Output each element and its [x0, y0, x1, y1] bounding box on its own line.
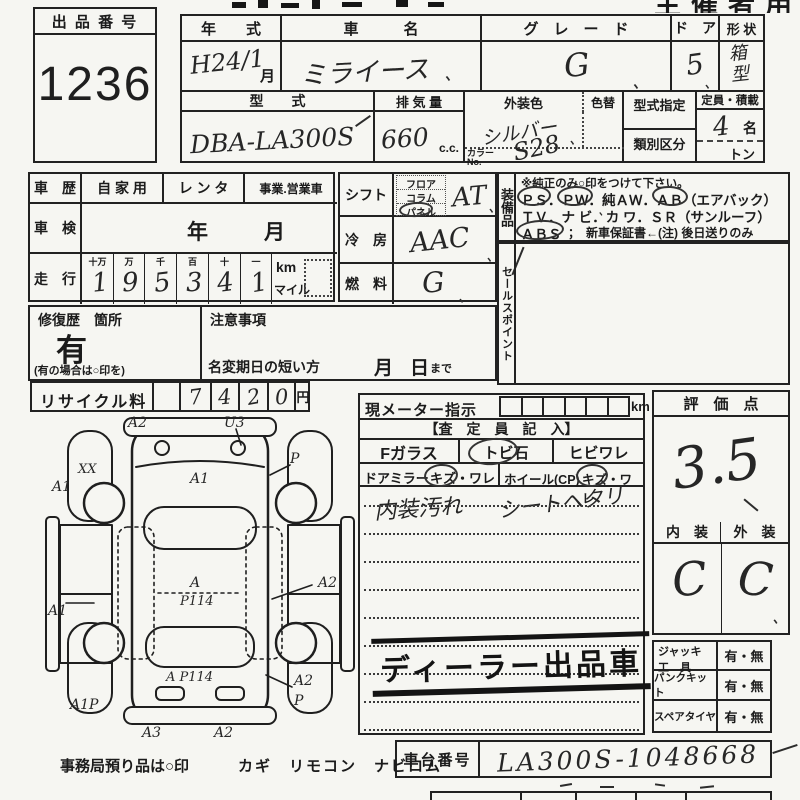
header-fragment [281, 3, 299, 8]
odometer-digit-col: 十 4 [209, 254, 241, 304]
load-cell: トン [697, 142, 763, 161]
bottom-partial-col [575, 791, 577, 800]
damage-code: P114 [179, 594, 214, 609]
meter-digit-box [585, 398, 607, 415]
equipment-content: ※純正のみ○印をつけて下さい。 ＰＳ．ＰＷ．純ＡＷ．ＡＢ（エアバック） ＴＶ．ナ… [516, 174, 788, 240]
damage-code: A3 [140, 725, 161, 741]
fglass-crack-option: ヒビワレ [554, 440, 643, 464]
capacity-unit: 名 [743, 118, 757, 138]
meter-row: 現メーター指示 km [360, 395, 643, 420]
rear-bumper [124, 707, 276, 724]
repair-cell: 修復歴 箇所 有 (有の場合は○印を) [30, 307, 202, 379]
recycle-unit: 円 [296, 387, 309, 406]
history-private: 自 家 用 [82, 174, 164, 204]
damage-code: A [188, 575, 200, 591]
year-header: 年 式 [182, 16, 282, 42]
odometer-digit-col: 十万 1 [82, 254, 114, 304]
fuel-label: 燃 料 [340, 264, 394, 304]
mirror-cell: ドアミラー キズ・ワレ [360, 464, 500, 487]
mirror-label: ドアミラー [364, 468, 429, 487]
inspection-month-unit: 月 [264, 216, 285, 246]
fuel-value: G [421, 265, 446, 299]
pen-tick: 、 [692, 200, 705, 219]
year-cell: H24/1 月 [182, 42, 282, 92]
odometer-col-label: 十 [209, 255, 240, 268]
recycle-digit: 0 [274, 384, 289, 409]
lot-number-value: 1236 [35, 49, 155, 119]
color-change-header: 色替 [584, 92, 624, 112]
caution-cell: 注意事項 名変期日の短い方 月 日 まで [202, 307, 495, 379]
odometer-digit: 1 [249, 267, 271, 299]
dotted-line [364, 729, 639, 731]
exterior-label: 外 装 [721, 522, 788, 544]
caution-label: 注意事項 [210, 310, 266, 330]
recycle-digit: 4 [217, 384, 232, 409]
pen-tick: 、 [569, 128, 584, 149]
dotted-line [364, 561, 639, 563]
bottom-partial-table-line [430, 791, 772, 793]
exterior-value: C [736, 551, 775, 607]
rating-label: 評 価 点 [654, 392, 788, 417]
capacity-cell: 4 名 [697, 110, 763, 142]
pen-tick: 、 [704, 72, 719, 93]
bottom-partial-col [520, 791, 522, 800]
recycle-digit: 7 [187, 384, 204, 410]
jack-label-line1: ジャッキ [654, 642, 716, 659]
year-value: H24/1 [189, 44, 266, 80]
type-designation-label: 型式指定 [624, 95, 695, 114]
chassis-number-row: 車台番号 LA300S-1048668 [395, 740, 772, 778]
bottom-partial-col [635, 791, 637, 800]
header-fragment [428, 2, 444, 7]
recycle-digit: 2 [245, 384, 262, 410]
spare-tire-label: スペアタイヤ [654, 701, 718, 731]
inspector-entry-header: 【査 定 員 記 入】 [360, 420, 643, 440]
auction-sheet: 主催者用 出 品 番 号 1236 年 式 車 名 グ レ ー ド ド ア 形 … [0, 0, 800, 800]
damage-code: A2 [292, 673, 313, 689]
recycle-digit-cell: 4 [210, 383, 238, 410]
pen-stroke [743, 498, 758, 511]
sales-point-label: セールスポイント [499, 244, 516, 383]
lot-number-label: 出 品 番 号 [35, 9, 155, 35]
odometer-label: 走 行 [30, 254, 82, 304]
left-sill [46, 517, 59, 671]
damage-code: XX [77, 462, 97, 477]
sales-point-box: セールスポイント [497, 242, 790, 385]
model-cell: DBA-LA300S [182, 112, 375, 161]
dotted-line [364, 505, 639, 507]
interior-value: C [669, 550, 710, 607]
km-unit: km [276, 259, 296, 275]
displacement-value: 660 [380, 122, 430, 154]
damage-code: A1P [68, 697, 99, 713]
grade-value: G [562, 45, 591, 85]
damage-code: A2 [316, 575, 337, 591]
damage-code: A1 [50, 479, 71, 495]
odometer-col-label: 万 [114, 255, 144, 268]
right-sill [341, 517, 354, 671]
load-unit: トン [729, 144, 755, 163]
ac-value: AAC [409, 222, 472, 259]
odometer-unit-checkbox [304, 259, 332, 297]
odometer-col-label: 百 [177, 255, 208, 268]
organizer-label: 主催者用 [654, 0, 800, 13]
header-fragment [342, 2, 362, 7]
dotted-line [364, 617, 639, 619]
front-left-wheel [84, 483, 124, 523]
history-label: 車 歴 [30, 174, 82, 204]
spare-tire-value: 有・無 [718, 701, 770, 731]
fuel-cell: G 、 [394, 264, 499, 304]
meter-digit-box [607, 398, 629, 415]
odometer-digit-col: 千 5 [145, 254, 177, 304]
fglass-label: Fガラス [360, 440, 460, 464]
equipment-box: 装備品 ※純正のみ○印をつけて下さい。 ＰＳ．ＰＷ．純ＡＷ．ＡＢ（エアバック） … [497, 172, 790, 242]
pen-stroke [772, 744, 797, 754]
dotted-line [364, 533, 639, 535]
pen-stroke [560, 783, 572, 787]
shape-header: 形 状 [720, 16, 763, 42]
recycle-fee-row: リサイクル料 7 4 2 0 円 [30, 381, 310, 412]
lot-number-box: 出 品 番 号 1236 [33, 7, 157, 163]
bottom-partial-col [770, 791, 772, 800]
damage-code: A2 [212, 725, 233, 741]
equipment-line3-warranty: ； 新車保証書←(注) 後日送りのみ [568, 224, 753, 241]
displacement-cell: 660 c.c. [375, 112, 465, 161]
header-fragment [232, 2, 246, 8]
rating-score: 3.5 [668, 426, 765, 503]
color-header: 外装色 [465, 92, 584, 112]
office-items-list: カギ リモコン ナビロム [238, 755, 442, 776]
rating-box: 評 価 点 3.5 内 装 外 装 C C 、 [652, 390, 790, 635]
car-name-cell: ミライース 、 [282, 42, 482, 92]
odometer-digit: 1 [90, 267, 110, 299]
odometer-digit: 9 [121, 267, 140, 298]
repair-note: (有の場合は○印を) [34, 362, 125, 378]
history-table: 車 歴 自 家 用 レ ン タ 事業.営業車 車 検 年 月 走 行 十万 1 … [28, 172, 335, 302]
shift-option-floor: フロア [397, 176, 445, 190]
odometer-col-label: 一 [241, 255, 271, 268]
odometer-digit-col: 一 1 [241, 254, 272, 304]
pen-tick: 、 [444, 60, 462, 86]
repair-caution-box: 修復歴 箇所 有 (有の場合は○印を) 注意事項 名変期日の短い方 月 日 まで [28, 305, 497, 381]
meter-unit: km [631, 399, 650, 414]
inspection-cell: 年 月 [82, 204, 337, 254]
displacement-header: 排 気 量 [375, 92, 465, 112]
ac-cell: AAC 、 [394, 217, 499, 264]
puncture-kit-label: パンクキット [654, 671, 718, 701]
damage-code: A1 [46, 603, 67, 619]
pen-stroke [700, 785, 714, 788]
odometer-digit: 3 [185, 268, 203, 299]
recycle-cell-empty [152, 383, 179, 410]
pen-stroke [355, 115, 371, 127]
puncture-kit-value: 有・無 [718, 671, 770, 701]
bottom-partial-col [430, 791, 432, 800]
shift-value: AT [451, 181, 488, 214]
car-name-header: 車 名 [282, 16, 482, 42]
odometer-digit-col: 百 3 [177, 254, 209, 304]
classification-cell: 類別区分 [624, 130, 697, 161]
doors-value: 5 [684, 47, 706, 82]
damage-code: A1 [188, 471, 209, 487]
car-damage-diagram: A2 U3 XX A1 P A1 A1 A2 A P114 A P114 A1P… [40, 415, 360, 750]
model-header: 型 式 [182, 92, 375, 112]
rename-deadline-label: 名変期日の短い方 [208, 357, 320, 377]
meter-digit-boxes [499, 396, 630, 417]
shape-cell: 箱型 [720, 42, 763, 92]
meter-label: 現メーター指示 [365, 399, 477, 420]
meter-digit-box [501, 398, 521, 415]
meter-digit-box [542, 398, 564, 415]
dotted-line [364, 701, 639, 703]
inspector-note-1: 内装汚れ [373, 488, 463, 526]
rename-month-unit: 月 [374, 353, 393, 380]
chassis-value: LA300S-1048668 [497, 739, 760, 777]
pen-stroke [600, 786, 614, 788]
pen-leader [272, 585, 312, 599]
color-area: シルバー 、 カラー No. S28 [465, 112, 624, 161]
doors-header: ド ア [672, 16, 720, 42]
inspection-label: 車 検 [30, 204, 82, 254]
month-unit: 月 [260, 65, 275, 86]
damage-code: U3 [224, 415, 245, 431]
type-designation-cell: 型式指定 [624, 92, 697, 130]
jack-label-cell: ジャッキ 工 具 [654, 642, 718, 671]
capacity-header: 定員・積載 [697, 92, 763, 110]
office-items-note: 事務局預り品は○印 [60, 755, 189, 776]
damage-code: A P114 [165, 670, 213, 685]
recycle-digit-cell: 2 [238, 383, 267, 410]
header-fragment [258, 0, 268, 8]
pen-tick: 、 [598, 200, 611, 219]
interior-label: 内 装 [654, 522, 721, 544]
odometer-digit: 4 [215, 267, 236, 299]
odometer-col-label: 千 [145, 255, 176, 268]
bottom-partial-col [685, 791, 687, 800]
spec-table: 年 式 車 名 グ レ ー ド ド ア 形 状 H24/1 月 ミライース 、 … [180, 14, 765, 163]
pen-tick: 、 [772, 604, 788, 628]
color-no-label: カラー No. [467, 149, 503, 168]
grade-cell: G 、 [482, 42, 672, 92]
odometer-unit-cell: km マイル [272, 254, 337, 304]
recycle-unit-cell: 円 [294, 383, 310, 410]
front-right-wheel [276, 483, 316, 523]
classification-label: 類別区分 [624, 134, 695, 153]
capacity-value: 4 [711, 111, 731, 143]
rename-made-unit: まで [430, 360, 452, 376]
shift-options-box: フロア コラム パネル [396, 175, 446, 216]
car-name-value: ミライース [299, 49, 429, 93]
damage-code: P [293, 693, 304, 709]
dotted-line [364, 589, 639, 591]
pen-tick: 、 [458, 286, 473, 307]
dealer-stamp: ディーラー出品車 [371, 631, 650, 697]
odometer-digit-col: 万 9 [114, 254, 145, 304]
odometer-col-label: 十万 [82, 255, 113, 268]
pen-stroke [655, 783, 665, 786]
rename-day-unit: 日 [410, 353, 429, 380]
shape-value: 箱型 [728, 43, 752, 86]
rating-col-divider [721, 544, 722, 633]
recycle-digit-cell: 0 [267, 383, 294, 410]
pen-tick: 、 [632, 68, 650, 94]
header-fragment [396, 0, 408, 7]
inspection-year-unit: 年 [187, 216, 208, 246]
recycle-digit-cell: 7 [179, 383, 210, 410]
rear-right-wheel [276, 623, 316, 663]
controls-table: シフト フロア コラム パネル AT 、 冷 房 AAC 、 燃 料 G 、 [338, 172, 497, 302]
history-rental: レ ン タ [164, 174, 245, 204]
ac-label: 冷 房 [340, 217, 394, 264]
shift-label: シフト [340, 174, 394, 217]
header-fragment [312, 0, 320, 9]
meter-digit-box [521, 398, 543, 415]
meter-digit-box [564, 398, 586, 415]
organizer-label-clip: 主催者用 [640, 0, 800, 13]
grade-header: グ レ ー ド [482, 16, 672, 42]
history-business: 事業.営業車 [245, 174, 337, 204]
equipment-label: 装備品 [499, 174, 516, 240]
displacement-unit: c.c. [439, 141, 459, 155]
footer-note-row: 事務局預り品は○印 カギ リモコン ナビロム [60, 755, 390, 777]
damage-code: P [289, 451, 300, 467]
jack-value: 有・無 [718, 642, 770, 671]
inspector-table: 現メーター指示 km 【査 定 員 記 入】 Fガラス トビ石 ヒビワレ ドアミ… [358, 393, 645, 735]
accessories-box: ジャッキ 工 具 有・無 パンクキット 有・無 スペアタイヤ 有・無 [652, 640, 772, 733]
doors-cell: 5 、 [672, 42, 720, 92]
fglass-row: Fガラス トビ石 ヒビワレ [360, 440, 643, 464]
model-value: DBA-LA300S [189, 122, 355, 160]
damage-code: A2 [126, 415, 147, 431]
odometer-digit: 5 [152, 267, 172, 299]
shift-cell: フロア コラム パネル AT 、 [394, 174, 499, 217]
recycle-fee-label: リサイクル料 [40, 388, 147, 412]
